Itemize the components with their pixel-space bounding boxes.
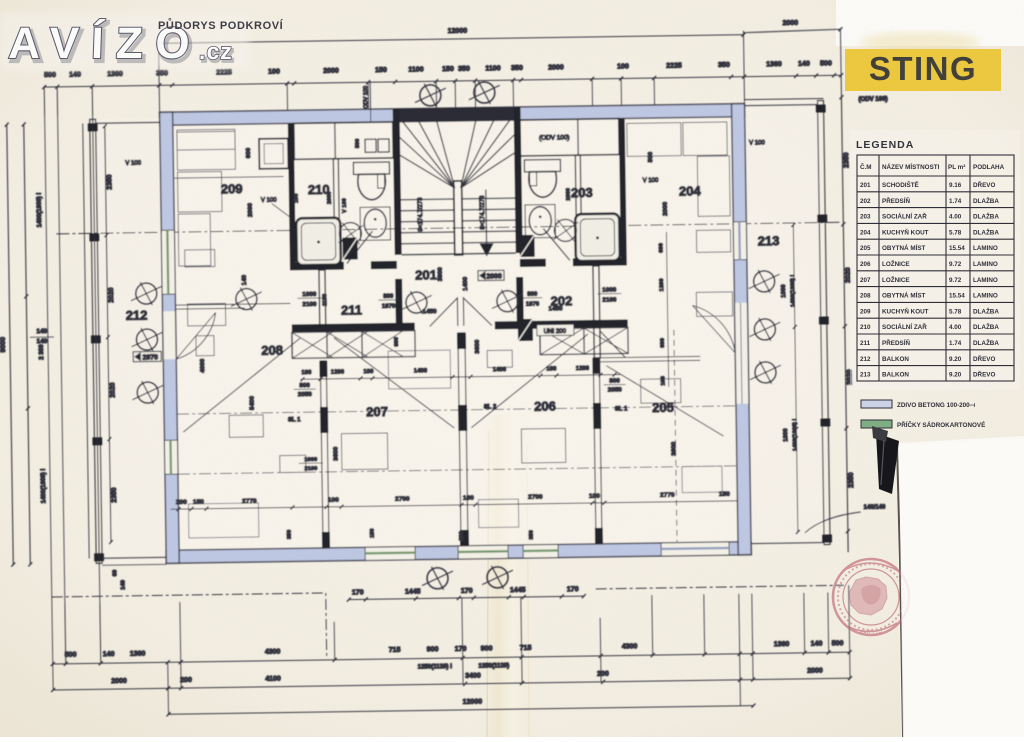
svg-text:4000: 4000 xyxy=(199,358,206,373)
svg-text:PODLAHA: PODLAHA xyxy=(973,164,1005,171)
svg-text:100: 100 xyxy=(363,368,374,375)
svg-text:12000: 12000 xyxy=(448,28,468,35)
svg-text:LOŽNICE: LOŽNICE xyxy=(882,275,910,284)
svg-text:140: 140 xyxy=(103,651,115,658)
svg-text:140: 140 xyxy=(36,328,47,335)
svg-text:LEGENDA: LEGENDA xyxy=(856,139,914,151)
svg-text:900: 900 xyxy=(481,645,493,652)
svg-text:1400: 1400 xyxy=(462,276,469,291)
svg-text:500: 500 xyxy=(832,640,844,647)
svg-text:SL 1: SL 1 xyxy=(615,406,628,412)
svg-text:2000: 2000 xyxy=(486,273,502,280)
svg-text:DLAŽBA: DLAŽBA xyxy=(973,338,999,347)
svg-text:V 100: V 100 xyxy=(342,198,348,213)
svg-text:SOCIÁLNÍ ZAŘ: SOCIÁLNÍ ZAŘ xyxy=(882,212,927,221)
svg-text:1400(1900) I: 1400(1900) I xyxy=(36,193,44,228)
svg-text:500: 500 xyxy=(820,60,832,67)
svg-text:SOCIÁLNÍ ZAŘ: SOCIÁLNÍ ZAŘ xyxy=(882,322,927,331)
svg-text:200: 200 xyxy=(597,671,609,678)
svg-text:1000: 1000 xyxy=(780,284,787,298)
svg-text:209: 209 xyxy=(221,181,243,196)
svg-text:500: 500 xyxy=(647,151,654,162)
svg-text:213: 213 xyxy=(860,372,871,379)
svg-text:208: 208 xyxy=(261,343,283,358)
svg-text:140: 140 xyxy=(241,274,248,285)
svg-text:350: 350 xyxy=(529,530,535,540)
svg-text:2350: 2350 xyxy=(107,174,114,190)
svg-text:9.72: 9.72 xyxy=(949,277,962,284)
svg-text:DLAŽBA: DLAŽBA xyxy=(973,212,999,221)
svg-text:PŘEDSÍŇ: PŘEDSÍŇ xyxy=(882,338,910,347)
svg-text:209: 209 xyxy=(860,308,871,315)
svg-text:140/140: 140/140 xyxy=(864,505,886,511)
svg-text:9×174.7/273: 9×174.7/273 xyxy=(417,197,425,232)
svg-text:600: 600 xyxy=(660,337,666,348)
svg-text:PŘÍČKY SÁDROKARTONOVÉ: PŘÍČKY SÁDROKARTONOVÉ xyxy=(897,420,985,429)
svg-text:9000: 9000 xyxy=(0,337,7,353)
svg-text:DLAŽBA: DLAŽBA xyxy=(973,322,999,331)
svg-text:NÁZEV MÍSTNOSTI: NÁZEV MÍSTNOSTI xyxy=(882,162,940,171)
svg-text:PŘEDSÍŇ: PŘEDSÍŇ xyxy=(882,196,910,205)
svg-text:1100: 1100 xyxy=(408,66,423,73)
svg-text:600: 600 xyxy=(659,242,665,253)
svg-text:600: 600 xyxy=(245,147,252,158)
svg-text:1400: 1400 xyxy=(414,367,428,374)
svg-text:2 300: 2 300 xyxy=(38,344,45,360)
svg-text:1.74: 1.74 xyxy=(949,340,962,347)
svg-text:200: 200 xyxy=(459,531,465,541)
svg-text:100: 100 xyxy=(301,369,312,376)
svg-text:900: 900 xyxy=(427,646,439,653)
svg-text:1000: 1000 xyxy=(304,457,318,463)
svg-text:100: 100 xyxy=(328,497,339,504)
svg-text:1400: 1400 xyxy=(493,366,507,373)
svg-text:202: 202 xyxy=(860,198,871,205)
svg-text:KUCHYŇ KOUT: KUCHYŇ KOUT xyxy=(882,306,929,315)
svg-text:200: 200 xyxy=(176,499,187,506)
svg-text:205: 205 xyxy=(652,400,674,415)
svg-text:500: 500 xyxy=(355,139,361,149)
svg-text:1360: 1360 xyxy=(766,61,782,68)
svg-text:170: 170 xyxy=(455,646,467,653)
svg-text:KAIT - TR: KAIT - TR xyxy=(860,630,882,636)
svg-text:2100: 2100 xyxy=(304,466,318,472)
svg-text:PŮDORYS PODKROVÍ: PŮDORYS PODKROVÍ xyxy=(158,18,284,32)
svg-text:2000: 2000 xyxy=(327,191,333,204)
svg-text:15.54: 15.54 xyxy=(949,245,965,252)
svg-text:1360: 1360 xyxy=(130,651,146,658)
svg-text:350: 350 xyxy=(511,65,523,72)
svg-text:100: 100 xyxy=(617,63,629,70)
svg-text:LAMINO: LAMINO xyxy=(973,277,998,284)
svg-text:150: 150 xyxy=(442,66,454,73)
svg-text:350: 350 xyxy=(287,530,293,540)
svg-text:1000: 1000 xyxy=(602,287,617,294)
svg-text:2225: 2225 xyxy=(216,69,232,76)
svg-text:200: 200 xyxy=(180,677,192,684)
svg-text:2050: 2050 xyxy=(298,391,313,398)
svg-text:V 100: V 100 xyxy=(125,161,141,167)
svg-text:(ODV 100): (ODV 100) xyxy=(858,96,887,103)
svg-text:1450: 1450 xyxy=(422,308,437,315)
svg-text:60: 60 xyxy=(112,569,118,576)
svg-text:208: 208 xyxy=(860,293,871,300)
svg-text:1450: 1450 xyxy=(548,305,563,312)
svg-text:1400(1900) I: 1400(1900) I xyxy=(40,468,48,503)
svg-text:1100: 1100 xyxy=(485,65,500,72)
svg-text:800: 800 xyxy=(383,293,394,300)
svg-text:2000: 2000 xyxy=(111,678,127,685)
svg-text:350: 350 xyxy=(718,62,730,69)
svg-text:9.20: 9.20 xyxy=(949,372,962,379)
svg-text:205: 205 xyxy=(860,245,871,252)
svg-text:350: 350 xyxy=(458,66,470,73)
svg-text:100: 100 xyxy=(546,365,557,372)
svg-text:100: 100 xyxy=(661,375,667,386)
svg-text:2000: 2000 xyxy=(323,68,339,75)
svg-text:1200: 1200 xyxy=(576,365,590,372)
svg-text:160: 160 xyxy=(463,495,474,502)
svg-text:150: 150 xyxy=(370,528,376,538)
svg-text:2000: 2000 xyxy=(783,20,799,27)
svg-text:2770: 2770 xyxy=(242,498,257,505)
svg-text:(ODV 100): (ODV 100) xyxy=(539,134,570,141)
svg-text:3600: 3600 xyxy=(671,441,678,456)
svg-text:2000: 2000 xyxy=(247,202,254,217)
svg-text:2350: 2350 xyxy=(111,487,118,503)
svg-text:170: 170 xyxy=(567,586,579,593)
svg-text:150: 150 xyxy=(193,499,204,506)
svg-text:204: 204 xyxy=(679,183,702,198)
svg-text:2970: 2970 xyxy=(142,354,158,361)
svg-text:1200: 1200 xyxy=(331,369,345,376)
svg-text:1150: 1150 xyxy=(322,294,328,306)
svg-text:2000: 2000 xyxy=(807,668,823,675)
svg-text:600: 600 xyxy=(394,337,400,347)
svg-text:1000: 1000 xyxy=(302,291,317,298)
svg-text:2700: 2700 xyxy=(528,494,543,501)
svg-text:9.72: 9.72 xyxy=(949,261,962,268)
svg-text:1360: 1360 xyxy=(107,71,123,78)
svg-text:2000: 2000 xyxy=(662,201,669,216)
svg-text:9.20: 9.20 xyxy=(949,356,962,363)
svg-text:2100: 2100 xyxy=(602,297,617,304)
svg-text:15.54: 15.54 xyxy=(949,293,965,300)
svg-text:SL 1: SL 1 xyxy=(288,417,301,423)
svg-text:V 100: V 100 xyxy=(643,178,659,184)
svg-text:1200: 1200 xyxy=(659,278,665,292)
svg-text:212: 212 xyxy=(126,308,148,323)
svg-text:715: 715 xyxy=(389,647,401,654)
svg-text:2000: 2000 xyxy=(566,188,572,201)
svg-text:140: 140 xyxy=(798,61,810,68)
svg-text:800: 800 xyxy=(609,378,620,385)
svg-text:207: 207 xyxy=(860,277,871,284)
svg-text:DŘEVO: DŘEVO xyxy=(973,370,995,379)
svg-text:1400(1900) I: 1400(1900) I xyxy=(790,274,796,307)
svg-text:140: 140 xyxy=(37,338,48,345)
svg-text:140: 140 xyxy=(69,72,81,79)
svg-text:201: 201 xyxy=(860,182,871,189)
svg-text:KUCHYŇ KOUT: KUCHYŇ KOUT xyxy=(882,227,929,236)
svg-text:2050: 2050 xyxy=(608,387,623,394)
svg-text:1250(1120) I: 1250(1120) I xyxy=(418,663,453,671)
svg-text:100: 100 xyxy=(294,194,300,204)
svg-text:2225: 2225 xyxy=(666,63,682,70)
svg-text:BALKON: BALKON xyxy=(882,356,909,363)
svg-text:OBYTNÁ MÍST: OBYTNÁ MÍST xyxy=(882,291,926,300)
svg-text:12000: 12000 xyxy=(463,699,483,706)
svg-text:203: 203 xyxy=(860,214,871,221)
svg-text:2100: 2100 xyxy=(302,301,317,308)
svg-text:DLAŽBA: DLAŽBA xyxy=(973,227,999,236)
svg-text:LOŽNICE: LOŽNICE xyxy=(882,259,910,268)
svg-text:3400: 3400 xyxy=(465,673,481,680)
svg-text:201: 201 xyxy=(415,267,437,282)
svg-text:1445: 1445 xyxy=(405,589,421,596)
svg-text:1360: 1360 xyxy=(774,641,790,648)
svg-text:4.00: 4.00 xyxy=(949,214,962,221)
svg-text:204: 204 xyxy=(860,229,871,236)
svg-text:OBYTNÁ MÍST: OBYTNÁ MÍST xyxy=(882,243,926,252)
svg-text:BALKON: BALKON xyxy=(882,372,909,379)
svg-text:LAMINO: LAMINO xyxy=(973,261,998,268)
svg-text:1445: 1445 xyxy=(510,587,526,594)
svg-text:2770: 2770 xyxy=(660,492,675,499)
svg-text:DŘEVO: DŘEVO xyxy=(973,354,995,363)
svg-text:9.16: 9.16 xyxy=(949,182,962,189)
svg-text:100: 100 xyxy=(589,493,600,500)
svg-text:170: 170 xyxy=(352,589,364,596)
svg-text:2350: 2350 xyxy=(848,472,855,488)
svg-text:211: 211 xyxy=(341,302,362,317)
svg-text:207: 207 xyxy=(366,404,388,419)
svg-text:.cz: .cz xyxy=(199,38,234,64)
svg-text:1400(1900) I: 1400(1900) I xyxy=(792,418,798,451)
svg-text:150: 150 xyxy=(375,67,387,74)
svg-text:140: 140 xyxy=(121,579,127,590)
svg-text:2020: 2020 xyxy=(108,287,115,303)
svg-text:350: 350 xyxy=(156,70,168,77)
svg-text:3600: 3600 xyxy=(333,446,340,461)
svg-text:V 100: V 100 xyxy=(749,140,765,146)
svg-text:210: 210 xyxy=(860,324,871,331)
svg-text:DŘEVO: DŘEVO xyxy=(973,180,995,189)
svg-text:203: 203 xyxy=(571,185,593,200)
svg-text:5.78: 5.78 xyxy=(949,229,962,236)
svg-text:2000: 2000 xyxy=(548,64,564,71)
svg-text:1.74: 1.74 xyxy=(949,198,962,205)
svg-text:800: 800 xyxy=(527,291,538,298)
svg-text:213: 213 xyxy=(758,233,780,248)
svg-text:SCHODIŠTĚ: SCHODIŠTĚ xyxy=(882,180,919,189)
svg-text:212: 212 xyxy=(860,356,871,363)
svg-text:1970: 1970 xyxy=(382,303,396,310)
svg-text:STING: STING xyxy=(869,50,977,87)
svg-text:Č.M: Č.M xyxy=(860,162,872,171)
svg-text:140: 140 xyxy=(811,641,823,648)
svg-text:ZDIVO BETONG 100-200⟞: ZDIVO BETONG 100-200⟞ xyxy=(897,402,975,409)
svg-text:2700: 2700 xyxy=(395,496,410,503)
svg-text:PL m²: PL m² xyxy=(948,164,965,171)
svg-text:3600: 3600 xyxy=(474,339,481,354)
svg-text:800: 800 xyxy=(299,382,310,389)
svg-text:LAMINO: LAMINO xyxy=(973,293,998,300)
svg-text:1970: 1970 xyxy=(526,301,540,308)
svg-text:4100: 4100 xyxy=(265,676,281,683)
svg-text:4300: 4300 xyxy=(622,643,638,650)
svg-text:500: 500 xyxy=(65,652,77,659)
svg-text:LAMINO: LAMINO xyxy=(973,245,998,252)
svg-text:2020: 2020 xyxy=(110,382,117,398)
svg-text:206: 206 xyxy=(534,399,556,414)
svg-text:SL 2: SL 2 xyxy=(484,404,497,410)
svg-text:2350: 2350 xyxy=(843,152,850,168)
svg-text:5400: 5400 xyxy=(249,395,256,410)
svg-text:150: 150 xyxy=(719,491,730,498)
svg-text:5.78: 5.78 xyxy=(949,308,962,315)
svg-text:170: 170 xyxy=(461,588,473,595)
svg-text:UNI 200: UNI 200 xyxy=(544,328,567,335)
svg-text:1000: 1000 xyxy=(782,428,789,442)
svg-text:8×174.7/273: 8×174.7/273 xyxy=(479,195,487,230)
svg-text:4300: 4300 xyxy=(265,649,281,656)
svg-text:V 100: V 100 xyxy=(261,198,277,204)
svg-text:1250(1120): 1250(1120) xyxy=(478,662,509,669)
svg-text:211: 211 xyxy=(860,340,871,347)
svg-text:206: 206 xyxy=(860,261,871,268)
svg-text:3900: 3900 xyxy=(437,267,444,282)
svg-text:100: 100 xyxy=(268,69,280,76)
svg-text:DLAŽBA: DLAŽBA xyxy=(973,306,999,315)
svg-text:500: 500 xyxy=(44,72,56,79)
svg-text:4.00: 4.00 xyxy=(949,324,962,331)
svg-text:DLAŽBA: DLAŽBA xyxy=(973,196,999,205)
